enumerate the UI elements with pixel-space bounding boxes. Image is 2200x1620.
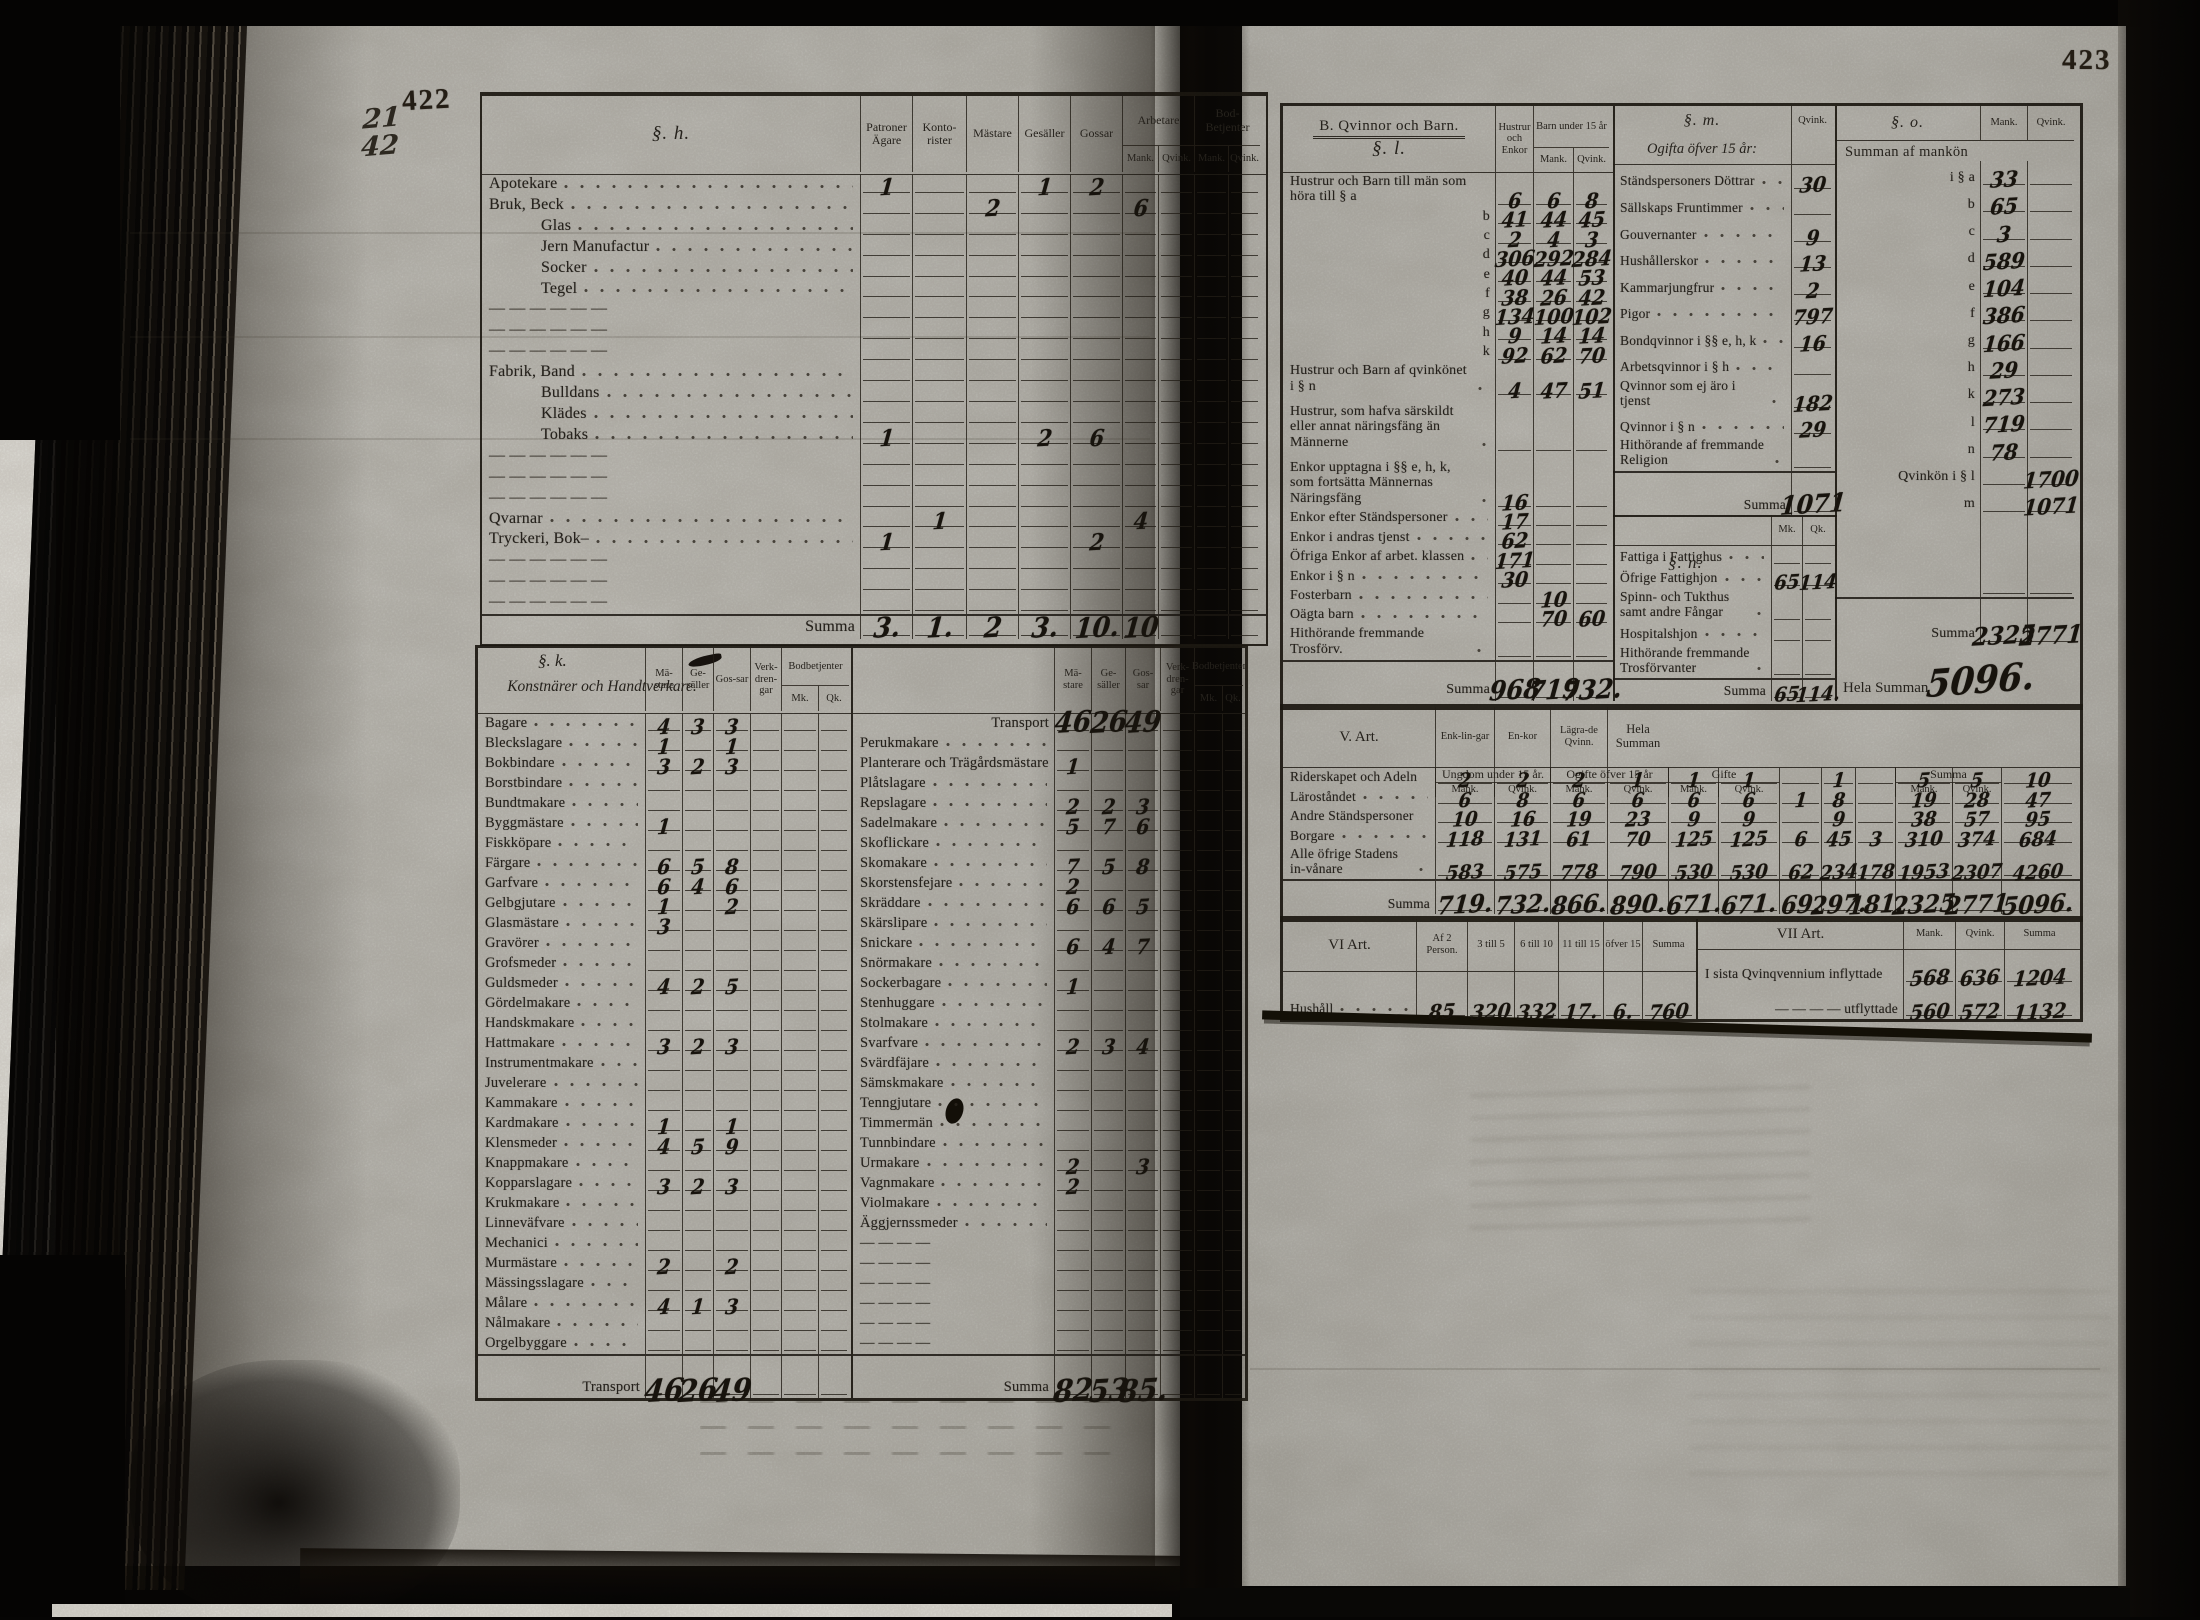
handwritten-value: 4 [1507,379,1522,401]
column-header: Hela Summan [1607,707,1668,767]
value-cell [1160,1134,1194,1154]
value-cell [1125,1194,1160,1214]
value-cell: 8 [1821,787,1855,806]
value-cell [1091,1254,1125,1274]
value-cell: 3 [1125,794,1160,814]
table-row: Qvarnar14 [482,510,1266,531]
handwritten-value: 320 [1470,1000,1512,1023]
table-row: Hospitalshjon [1613,623,1835,644]
value-cell: 6 [1533,173,1573,208]
handwritten-value: 332 [1516,1000,1558,1023]
value-cell: 3. [1018,616,1070,639]
row-label: Summa [853,1356,1054,1398]
value-cell [781,934,818,954]
dot-leader [564,1142,638,1147]
value-cell [1125,994,1160,1014]
value-cell [1194,1054,1222,1074]
table-row: Skorstensfejare2 [853,874,1245,894]
value-cell: 26 [1091,714,1125,734]
table-row: — — — — — — [482,447,1266,468]
value-cell: 125 [1668,826,1718,845]
table-row: Öfriga Enkor af arbet. klassen171 [1283,548,1613,567]
handwritten-value: 45 [1825,828,1852,849]
value-cell: 1 [1718,768,1779,787]
value-cell [966,384,1018,405]
title-cell: B. Qvinnor och Barn. §. l. [1283,106,1495,172]
table-row: — — — — — — [482,468,1266,489]
value-cell [682,954,713,974]
value-cell: 719. [1435,881,1494,914]
value-cell [1091,974,1125,994]
table-row: Öfrige Fattighjon65114 [1613,567,1835,588]
sub-header: Qk. [818,686,849,711]
value-cell [1228,238,1260,259]
table-header: §. m. Qvink. Ogifta öfver 15 år: [1613,106,1835,165]
value-cell: 2 [1018,426,1070,447]
table-row: Kammakare [478,1094,851,1114]
dot-leader [1762,180,1784,185]
value-cell: 671. [1718,881,1779,914]
table-body: Bagare433Bleckslagare11Bokbindare323Bors… [478,714,851,1398]
value-cell [912,426,966,447]
value-cell [1054,1294,1091,1314]
table-body: Fattiga i FattighusÖfrige Fattighjon6511… [1613,546,1835,701]
value-cell [1855,787,1895,806]
row-label: Stolmakare [853,1014,1054,1034]
handwritten-margin-note: 21 42 [360,101,424,163]
handwritten-value: 3 [656,1036,671,1058]
value-cell [1054,1254,1091,1274]
table-header: B. Qvinnor och Barn. §. l. Hustrur och E… [1283,106,1613,173]
value-cell [2027,161,2074,188]
value-cell [1070,217,1122,238]
handwritten-value: 8 [1135,856,1150,878]
value-cell: 732. [1494,881,1550,914]
value-cell [912,217,966,238]
value-cell: 19 [1895,787,1952,806]
section-title-cell: §. k. Konstnärer och Handtverkare. [478,648,645,711]
handwritten-value: 61 [1565,828,1592,849]
value-cell [781,1154,818,1174]
value-cell [1122,572,1158,593]
value-cell [1125,1314,1160,1334]
column-header: Ge-säller [1091,648,1125,711]
value-cell [1158,342,1194,363]
value-cell [1054,1114,1091,1134]
value-cell [750,1174,781,1194]
value-cell [1018,489,1070,510]
value-cell [1122,551,1158,572]
table-row: Skärslipare [853,914,1245,934]
bleed-through-text [1690,1290,2110,1480]
value-cell [1054,1074,1091,1094]
value-cell: 5 [1054,814,1091,834]
row-label: I sista Qvinqvennium inflyttade [1698,950,1903,985]
handwritten-value: 684 [2018,828,2058,850]
handwritten-value: 3. [872,613,901,642]
value-cell [1194,814,1222,834]
row-label: Bulldans [482,384,860,405]
value-cell [1573,529,1609,548]
summary-row: Summa65114. [1613,678,1835,701]
row-label: Kammakare [478,1094,645,1114]
women-children-table: B. Qvinnor och Barn. §. l. Hustrur och E… [1280,103,2083,710]
value-cell: 2771 [1952,881,2001,914]
value-cell: 1 [682,1294,713,1314]
handwritten-value: 2 [690,756,705,778]
handwritten-value: 732. [1494,890,1552,918]
value-cell [1158,175,1194,196]
value-cell [1228,196,1260,217]
value-cell [1160,1174,1194,1194]
value-cell [750,1074,781,1094]
value-cell [1158,510,1194,531]
value-cell: 866. [1550,881,1607,914]
value-cell: 292 [1533,247,1573,266]
row-label: — — — — [853,1314,1054,1334]
value-cell [682,1334,713,1354]
summary-row: Summa968719732. [1283,660,1613,701]
table-row: Svärdfäjare [853,1054,1245,1074]
value-cell [2027,515,2074,597]
value-cell: 3 [713,1174,750,1194]
value-cell [912,259,966,280]
table-body: i § a33b65c3d589e104f386g166h29k273l719n… [1835,161,2074,645]
value-cell [912,300,966,321]
value-cell: 2 [1494,768,1550,787]
value-cell [1222,954,1243,974]
handwritten-value: 70 [1624,828,1651,849]
value-cell [1125,1294,1160,1314]
handwritten-value: 29 [1798,419,1826,442]
value-cell [682,1014,713,1034]
handwritten-value: 790 [1618,861,1658,883]
value-cell [1160,854,1194,874]
value-cell [1018,468,1070,489]
value-cell [1222,934,1243,954]
value-cell: 23 [1607,807,1668,826]
table-row: Målare413 [478,1294,851,1314]
value-cell: 1 [860,175,912,196]
value-cell [818,834,849,854]
row-label: Tenngjutare [853,1094,1054,1114]
value-cell [781,954,818,974]
value-cell: 3 [713,1294,750,1314]
row-label: Skoflickare [853,834,1054,854]
value-cell [1980,515,2027,597]
column-header: Ge-säller [682,648,713,711]
value-cell [1222,874,1243,894]
value-cell: 2 [1054,874,1091,894]
table-row: Gouvernanter9 [1613,218,1835,245]
value-cell: 332 [1514,972,1558,1019]
value-cell: 41 [1495,208,1533,227]
value-cell: 8 [1573,173,1609,208]
row-label: Skomakare [853,854,1054,874]
handwritten-value: 2 [982,614,1002,643]
value-cell [818,874,849,894]
dot-leader [1477,648,1488,653]
table-row: Enkor efter Ständspersoner17 [1283,510,1613,529]
row-label: — — — — — — [482,300,860,321]
table-body: Riderskapet och Adeln22211115510Lärostån… [1283,768,2080,914]
dot-leader [959,882,1047,887]
row-label: — — — — — — [482,593,860,614]
value-cell: 100 [1533,305,1573,324]
value-cell [1222,1314,1243,1334]
row-label: Klensmeder [478,1134,645,1154]
bleed-through-text [1470,1086,1810,1245]
value-cell: 134 [1495,305,1533,324]
dot-leader [545,882,638,887]
value-cell [750,1294,781,1314]
handwritten-value: 5 [1065,816,1080,838]
row-label: — — — — — — [482,468,860,489]
value-cell [781,1034,818,1054]
value-cell [1091,1194,1125,1214]
table-row: Bruk, Beck26 [482,196,1266,217]
handwritten-value: 589 [1982,250,2026,274]
dot-leader [936,842,1047,847]
value-cell: 9 [1668,807,1718,826]
value-cell [1228,426,1260,447]
column-header: Verk-dren-gar [1160,648,1194,711]
value-cell [781,994,818,1014]
value-cell [818,1194,849,1214]
value-cell: 8 [1494,787,1550,806]
value-cell [966,530,1018,551]
row-label: Oägta barn [1283,607,1495,626]
row-label: m [1835,488,1980,515]
value-cell [1125,1214,1160,1234]
value-cell [966,300,1018,321]
row-label: h [1835,352,1980,379]
handwritten-value: 62 [1539,344,1567,367]
value-cell [750,834,781,854]
value-cell [1125,1234,1160,1254]
value-cell [645,794,682,814]
row-label: Grofsmeder [478,954,645,974]
handwritten-value: 1071 [1778,490,1846,520]
value-cell: 1 [645,814,682,834]
column-group-header: Barn under 15 år [1533,106,1609,148]
table-row: Skoflickare [853,834,1245,854]
value-cell [1125,974,1160,994]
handwritten-value: 6 [1793,828,1808,849]
dot-leader [601,1062,638,1067]
value-cell: 10 [2001,768,2074,787]
value-cell [1194,510,1228,531]
value-cell [1018,300,1070,321]
row-label: b [1283,208,1495,227]
table-row: Skräddare665 [853,894,1245,914]
table-row: e404453 [1283,266,1613,285]
table-body: Hustrur och Barn till män som höra till … [1283,173,1613,701]
row-label: — — — — [853,1234,1054,1254]
value-cell: 2 [1054,1174,1091,1194]
value-cell [1222,894,1243,914]
value-cell [1194,974,1222,994]
scan-corner [0,1255,125,1617]
row-label [1835,515,1980,597]
value-cell [1122,321,1158,342]
value-cell [1228,405,1260,426]
value-cell: 890. [1607,881,1668,914]
value-cell [1495,626,1533,660]
value-cell [1222,1134,1243,1154]
table-row: Bulldans [482,384,1266,405]
handwritten-value: 17. [1563,1000,1598,1023]
value-cell [1160,934,1194,954]
value-cell: 47 [2001,787,2074,806]
value-cell [781,914,818,934]
table-row: — — — — — — [482,551,1266,572]
value-cell [1802,623,1833,644]
value-cell [860,321,912,342]
handwritten-value: 16 [1798,332,1826,355]
value-cell: 70 [1607,826,1668,845]
blank-header [1791,135,1833,164]
grand-total-label: Hela Summan [1843,680,1928,697]
value-cell [1222,734,1243,754]
dot-leader [569,742,638,747]
row-label: Tunnbindare [853,1134,1054,1154]
row-label: Qvinkön i § l [1835,461,1980,488]
row-label: Arbetsqvinnor i § h [1613,351,1791,378]
row-label: — — — — utflyttade [1698,985,1903,1020]
handwritten-value: 1 [1036,176,1053,200]
handwritten-value: 760 [1648,1000,1690,1023]
table-row: Juvelerare [478,1074,851,1094]
value-cell [1158,259,1194,280]
handwritten-value: 5 [1135,896,1150,918]
value-cell [966,175,1018,196]
value-cell [781,774,818,794]
value-cell: 46 [1054,714,1091,734]
value-cell: 6 [1091,894,1125,914]
value-cell: 320 [1467,972,1514,1019]
dot-leader [534,1302,638,1307]
table-row: I sista Qvinqvennium inflyttade568636120… [1698,950,2080,985]
value-cell: 671. [1668,881,1718,914]
value-cell [818,1094,849,1114]
value-cell [912,489,966,510]
value-cell [818,954,849,974]
value-cell: 3 [645,1174,682,1194]
value-cell [750,874,781,894]
row-label: Gouvernanter [1613,218,1791,245]
handwritten-value: 9 [1805,226,1820,248]
value-cell [1194,834,1222,854]
handwritten-value: 7 [1101,816,1116,838]
row-label: Sadelmakare [853,814,1054,834]
value-cell: 6 [1435,787,1494,806]
value-cell [1018,551,1070,572]
trades-table-section-h: §. h. Patroner Ägare Konto-rister Mästar… [480,92,1268,646]
handwritten-value: 13 [1798,252,1826,275]
value-cell [1160,754,1194,774]
value-cell [750,934,781,954]
value-cell [1160,974,1194,994]
value-cell [1228,616,1260,639]
table-row: — — — — — — [482,342,1266,363]
dot-leader [546,942,638,947]
dot-leader [572,1222,638,1227]
handwritten-value: 65 [1773,571,1800,592]
row-label: — — — — [853,1254,1054,1274]
value-cell [1194,363,1228,384]
row-label: l [1835,406,1980,433]
value-cell [966,342,1018,363]
value-cell [1194,1174,1222,1194]
table-row: Hushållerskor13 [1613,245,1835,272]
row-label: Krukmakare [478,1194,645,1214]
value-cell [1194,1134,1222,1154]
column-header: Mä-stare [1054,648,1091,711]
dot-leader [537,862,638,867]
value-cell [2027,297,2074,324]
row-label: Skräddare [853,894,1054,914]
row-label: Kopparslagare [478,1174,645,1194]
table-header: §. k. Konstnärer och Handtverkare. Mä-st… [478,648,851,714]
value-cell [1194,384,1228,405]
value-cell [713,934,750,954]
value-cell: 3 [645,914,682,934]
value-cell [912,551,966,572]
value-cell: 1 [860,530,912,551]
dot-leader [550,518,853,523]
value-cell [1125,774,1160,794]
value-cell: 2 [1054,794,1091,814]
handwritten-value: 178 [1856,861,1896,883]
handwritten-value: 3 [656,916,671,938]
column-header: öfver 15 [1603,919,1642,971]
handwritten-value: 29 [1989,359,2019,383]
handwritten-value: 46 [1053,707,1092,738]
value-cell: 3 [1125,1154,1160,1174]
value-cell: 568 [1903,950,1955,985]
value-cell [713,1014,750,1034]
row-label: Bruk, Beck [482,196,860,217]
table-row: Linneväfvare [478,1214,851,1234]
value-cell: 6 [1070,426,1122,447]
row-label: Fiskköpare [478,834,645,854]
column-group-header: Arbetare [1122,96,1194,146]
handwritten-value: 1 [878,426,895,450]
value-cell: 38 [1895,807,1952,826]
table-row: d306292284 [1283,247,1613,266]
value-cell: 4 [645,1294,682,1314]
handwritten-value: 49 [1123,707,1162,738]
dot-leader [1750,206,1784,211]
value-cell [1018,384,1070,405]
table-row: k273 [1835,379,2074,406]
dot-leader [656,247,853,252]
dot-leader [933,802,1047,807]
row-label: — — — — — — [482,551,860,572]
summary-row: Summa3.1.23.10.10 [482,614,1266,639]
value-cell: 6 [645,874,682,894]
value-cell: 92 [1495,343,1533,362]
value-cell [1573,454,1609,510]
row-label: Snörmakare [853,954,1054,974]
value-cell [713,1234,750,1254]
value-cell [818,1174,849,1194]
table-row: Oägta barn7060 [1283,607,1613,626]
next-page-edge [52,1604,1172,1617]
value-cell: 760 [1642,972,1694,1019]
value-cell: 5 [1125,894,1160,914]
